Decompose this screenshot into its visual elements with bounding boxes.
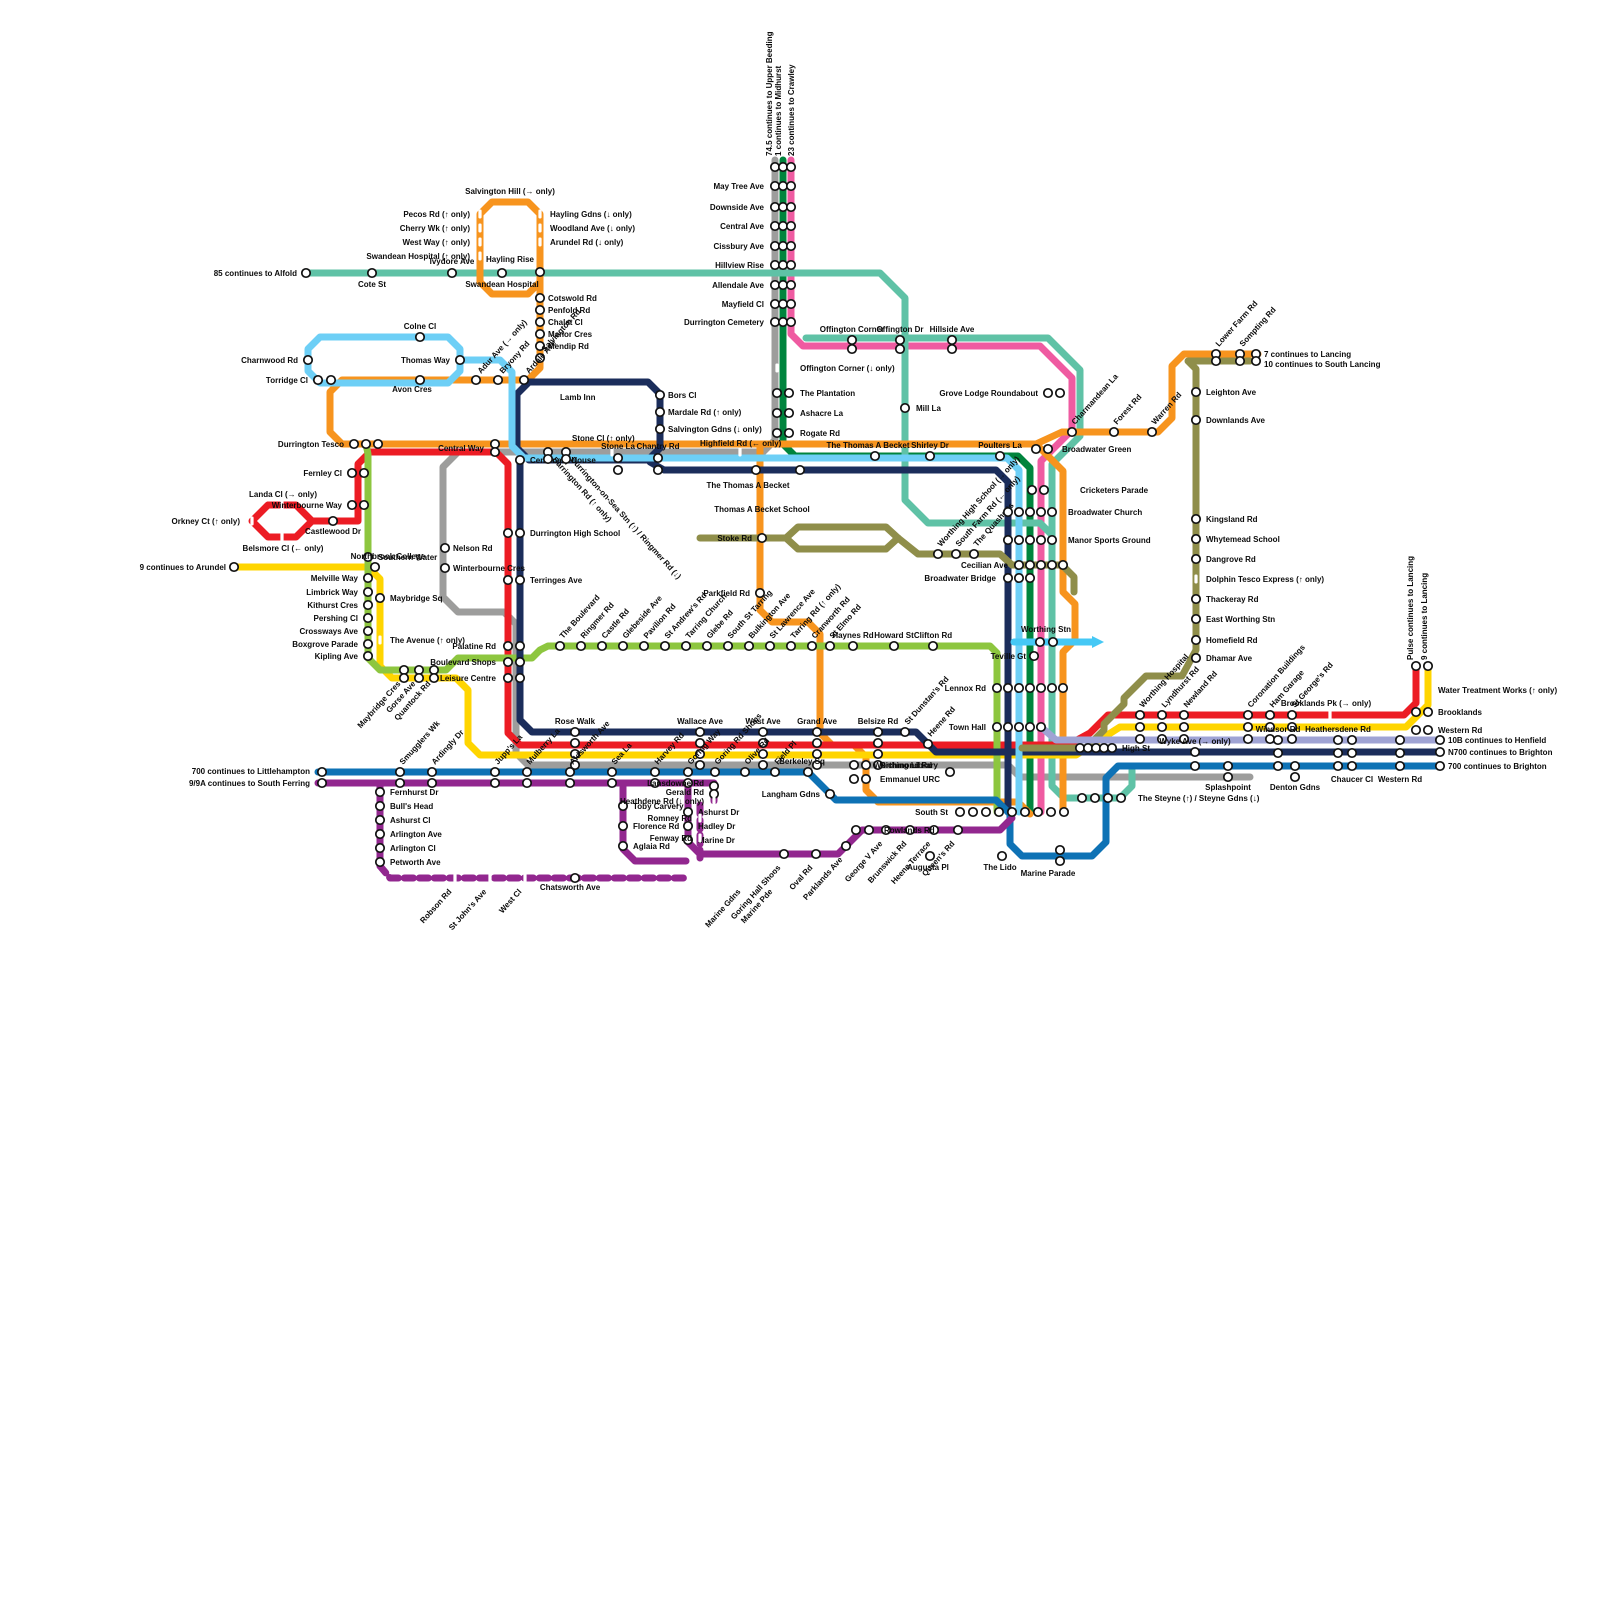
- stop-marker: [400, 666, 408, 674]
- stop-label: Arundel Rd (↓ only): [550, 238, 624, 247]
- stop-label: Haynes Rd: [832, 631, 873, 640]
- stop-label: Clifton Rd: [914, 631, 952, 640]
- stop-marker: [504, 576, 512, 584]
- stop-label: West Cl: [497, 887, 523, 915]
- stop-label: Cricketers Parade: [1080, 486, 1149, 495]
- stop-marker: [504, 642, 512, 650]
- stop-marker: [364, 601, 372, 609]
- stop-label: Robson Rd: [418, 887, 453, 925]
- stop-tick: [538, 238, 541, 247]
- stop-label: Marine Parade: [1021, 869, 1076, 878]
- stop-label: Wyke Ave (→ only): [1159, 737, 1231, 746]
- stop-marker: [1026, 684, 1034, 692]
- stop-label: Cissbury Ave: [713, 242, 764, 251]
- stop-label: Maybridge Sq: [390, 594, 443, 603]
- stop-marker: [779, 281, 787, 289]
- stop-marker: [516, 674, 524, 682]
- stop-marker: [759, 728, 767, 736]
- stop-marker: [787, 203, 795, 211]
- stop-marker: [371, 563, 379, 571]
- stop-label: Chatsworth Ave: [540, 883, 601, 892]
- stop-marker: [1244, 735, 1252, 743]
- stop-tick: [478, 238, 481, 247]
- stop-marker: [1021, 808, 1029, 816]
- stop-label: Leighton Ave: [1206, 388, 1257, 397]
- stop-marker: [376, 788, 384, 796]
- stop-label: Mayfield Cl: [722, 300, 764, 309]
- stop-marker: [852, 826, 860, 834]
- stop-label: Ashurst Dr: [698, 808, 739, 817]
- stop-label: Chaucer Cl: [1331, 775, 1373, 784]
- stop-marker: [516, 576, 524, 584]
- stop-label: N700 continues to Brighton: [1448, 748, 1553, 757]
- stop-label: Kithurst Cres: [307, 601, 358, 610]
- stop-marker: [929, 642, 937, 650]
- stop-marker: [1266, 735, 1274, 743]
- stop-marker: [865, 826, 873, 834]
- transit-map: May Tree AveDownside AveCentral AveCissb…: [0, 0, 1600, 1600]
- stop-label: Arlington Cl: [390, 844, 436, 853]
- stop-marker: [850, 775, 858, 783]
- stop-marker: [771, 300, 779, 308]
- stop-label: Hayling Rise: [486, 255, 535, 264]
- stop-label: Offington Corner (↓ only): [800, 364, 895, 373]
- stop-label: Durrington Tesco: [278, 440, 344, 449]
- stop-marker: [1048, 561, 1056, 569]
- stop-tick: [738, 448, 741, 457]
- stop-label: Winterbourne Way: [272, 501, 343, 510]
- stop-marker: [520, 376, 528, 384]
- stop-label: Lansdowne Rd: [647, 779, 704, 788]
- map-float-label: Pulse continues to Lancing: [1406, 556, 1415, 660]
- stop-marker: [874, 728, 882, 736]
- stop-marker: [771, 163, 779, 171]
- stop-marker: [516, 456, 524, 464]
- stop-marker: [787, 318, 795, 326]
- stop-marker: [504, 658, 512, 666]
- stop-label: Durrington Cemetery: [684, 318, 765, 327]
- stop-marker: [771, 768, 779, 776]
- stop-marker: [1288, 711, 1296, 719]
- stop-label: Parklands Ave: [801, 855, 845, 902]
- stop-marker: [1015, 723, 1023, 731]
- stop-label: Mardale Rd (↑ only): [668, 408, 742, 417]
- stop-marker: [608, 768, 616, 776]
- stop-label: Central Ave: [720, 222, 764, 231]
- stop-marker: [771, 261, 779, 269]
- stop-label: Allendale Ave: [712, 281, 764, 290]
- stop-label: Ivydore Ave: [430, 257, 475, 266]
- stop-marker: [1334, 762, 1342, 770]
- stop-marker: [348, 501, 356, 509]
- stop-marker: [771, 182, 779, 190]
- stop-label: Heathdene Rd (↓ only): [620, 797, 704, 806]
- stop-label: Ashurst Cl: [390, 816, 430, 825]
- stop-marker: [926, 852, 934, 860]
- stop-label: Aglaia Rd: [633, 842, 670, 851]
- stop-marker: [656, 425, 664, 433]
- stop-marker: [415, 666, 423, 674]
- stop-marker: [773, 429, 781, 437]
- stop-marker: [1158, 723, 1166, 731]
- stop-marker: [779, 318, 787, 326]
- stop-marker: [946, 768, 954, 776]
- stop-label: Ardingly Dr: [430, 728, 466, 766]
- stop-marker: [1436, 736, 1444, 744]
- stop-marker: [773, 409, 781, 417]
- stop-marker: [376, 594, 384, 602]
- stop-label: Berkeley Sq: [779, 757, 825, 766]
- stop-marker: [924, 740, 932, 748]
- stop-label: Howard St: [874, 631, 914, 640]
- stop-label: Dangrove Rd: [1206, 555, 1256, 564]
- stop-label: Parkfield Rd: [703, 589, 750, 598]
- stop-marker: [710, 782, 718, 790]
- stop-marker: [785, 429, 793, 437]
- stop-marker: [759, 761, 767, 769]
- stop-label: Emmanuel URC: [880, 775, 940, 784]
- stop-marker: [396, 768, 404, 776]
- stop-marker: [684, 822, 692, 830]
- stop-marker: [1084, 744, 1092, 752]
- stop-marker: [504, 674, 512, 682]
- stop-marker: [969, 808, 977, 816]
- stop-label: Brooklands: [1438, 708, 1483, 717]
- stop-marker: [566, 768, 574, 776]
- stop-marker: [954, 826, 962, 834]
- stop-marker: [948, 336, 956, 344]
- stop-label: Splashpoint: [1205, 783, 1251, 792]
- stop-label: Hadley Dr: [698, 822, 735, 831]
- stop-tick: [488, 874, 491, 883]
- stop-label: Bull's Head: [390, 802, 433, 811]
- stop-tick: [280, 533, 283, 542]
- stop-tick: [698, 814, 701, 823]
- stop-label: Heathersdene Rd: [1305, 725, 1371, 734]
- stop-marker: [1037, 723, 1045, 731]
- stop-label: Shirley Dr: [911, 441, 949, 450]
- stop-label: Chantry Rd: [636, 442, 679, 451]
- map-float-label: 9 continues to Lancing: [1420, 573, 1429, 660]
- stop-marker: [1026, 723, 1034, 731]
- stop-label: Downside Ave: [710, 203, 765, 212]
- stop-label: Whytemead School: [1206, 535, 1280, 544]
- stop-label: Homefield Rd: [1206, 636, 1258, 645]
- stop-marker: [1078, 794, 1086, 802]
- stop-marker: [428, 779, 436, 787]
- stop-label: 700 continues to Littlehampton: [192, 767, 310, 776]
- stop-marker: [1192, 515, 1200, 523]
- stop-label: Limbrick Way: [306, 588, 358, 597]
- stop-tick: [538, 224, 541, 233]
- stop-marker: [1224, 762, 1232, 770]
- stop-marker: [456, 356, 464, 364]
- stop-marker: [826, 642, 834, 650]
- stop-label: Downlands Ave: [1206, 416, 1266, 425]
- stop-marker: [1048, 536, 1056, 544]
- stop-marker: [1244, 723, 1252, 731]
- stop-marker: [504, 529, 512, 537]
- stop-label: Fenway Rd: [650, 834, 692, 843]
- stop-marker: [577, 642, 585, 650]
- stop-marker: [993, 723, 1001, 731]
- stop-marker: [1396, 749, 1404, 757]
- stop-marker: [696, 761, 704, 769]
- stop-marker: [1291, 762, 1299, 770]
- stop-marker: [1117, 794, 1125, 802]
- stop-marker: [362, 440, 370, 448]
- stop-label: Brooklands Pk (→ only): [1281, 699, 1372, 708]
- stop-marker: [1056, 389, 1064, 397]
- stop-marker: [1192, 555, 1200, 563]
- stop-marker: [1192, 388, 1200, 396]
- stop-marker: [758, 534, 766, 542]
- stop-tick: [478, 224, 481, 233]
- stop-label: Stoke Rd: [717, 534, 752, 543]
- stop-label: Offington Dr: [876, 325, 923, 334]
- stop-marker: [1424, 662, 1432, 670]
- stop-marker: [302, 269, 310, 277]
- stop-marker: [1004, 574, 1012, 582]
- stop-marker: [752, 466, 760, 474]
- map-float-label: The Thomas A Becket: [707, 481, 790, 490]
- stop-marker: [364, 574, 372, 582]
- stop-marker: [1252, 357, 1260, 365]
- stop-marker: [779, 222, 787, 230]
- stop-label: Leisure Centre: [440, 674, 497, 683]
- stop-marker: [1192, 595, 1200, 603]
- stop-label: Torridge Cl: [266, 376, 308, 385]
- stop-marker: [364, 614, 372, 622]
- stop-marker: [996, 452, 1004, 460]
- stop-label: Heene Rd: [926, 705, 957, 739]
- stop-label: Central Way: [438, 444, 484, 453]
- stop-tick: [742, 874, 745, 883]
- stop-label: 9/9A continues to South Ferring: [189, 779, 310, 788]
- stop-label: Grove Lodge Roundabout: [939, 389, 1038, 398]
- stop-marker: [374, 440, 382, 448]
- stop-marker: [1048, 508, 1056, 516]
- stop-marker: [448, 269, 456, 277]
- stop-marker: [360, 501, 368, 509]
- stop-label: Marine Dr: [698, 836, 735, 845]
- stop-marker: [1348, 762, 1356, 770]
- stop-marker: [862, 775, 870, 783]
- stop-label: Denton Gdns: [1270, 783, 1321, 792]
- stop-label: Colne Cl: [404, 322, 436, 331]
- stop-marker: [1180, 711, 1188, 719]
- stop-label: Orkney Ct (↑ only): [172, 517, 241, 526]
- stop-label: Melville Way: [311, 574, 359, 583]
- stop-label: Boulevard Shops: [430, 658, 496, 667]
- stop-label: 7 continues to Lancing: [1264, 350, 1351, 359]
- stop-label: 9 continues to Arundel: [140, 563, 226, 572]
- stop-tick: [538, 210, 541, 219]
- stop-tick: [478, 210, 481, 219]
- stop-marker: [491, 440, 499, 448]
- stop-label: Hillside Ave: [930, 325, 975, 334]
- route-line-purple-goring-dash: [380, 866, 688, 878]
- stop-marker: [1004, 508, 1012, 516]
- stop-marker: [1060, 808, 1068, 816]
- stop-label: Worthing Library: [874, 761, 939, 770]
- stop-marker: [1158, 711, 1166, 719]
- stop-label: Harvey Rd: [653, 731, 686, 767]
- stop-marker: [416, 333, 424, 341]
- stop-marker: [661, 642, 669, 650]
- route-line-olive-lens-a: [786, 527, 898, 538]
- stop-marker: [787, 182, 795, 190]
- stop-marker: [696, 728, 704, 736]
- stop-label: Ashacre La: [800, 409, 844, 418]
- map-float-label: 23 continues to Crawley: [787, 64, 796, 156]
- stop-marker: [741, 768, 749, 776]
- stop-marker: [796, 466, 804, 474]
- stop-marker: [472, 376, 480, 384]
- stop-marker: [614, 454, 622, 462]
- stop-marker: [1244, 711, 1252, 719]
- stop-marker: [1028, 486, 1036, 494]
- stop-label: Landa Cl (→ only): [249, 490, 317, 499]
- stop-marker: [1030, 652, 1038, 660]
- stop-marker: [995, 808, 1003, 816]
- stop-marker: [536, 306, 544, 314]
- stop-label: Avon Cres: [392, 385, 432, 394]
- stop-marker: [890, 642, 898, 650]
- stop-label: Charnwood Rd: [241, 356, 298, 365]
- stop-tick: [774, 874, 777, 883]
- stop-label: Winterbourne Cres: [453, 564, 525, 573]
- stop-marker: [1224, 773, 1232, 781]
- stop-marker: [536, 330, 544, 338]
- stop-marker: [1100, 744, 1108, 752]
- stop-marker: [441, 564, 449, 572]
- stop-marker: [516, 658, 524, 666]
- stop-marker: [1015, 574, 1023, 582]
- stop-marker: [1040, 486, 1048, 494]
- stop-marker: [364, 588, 372, 596]
- stop-label: 10B continues to Henfield: [1448, 736, 1546, 745]
- stop-marker: [1436, 762, 1444, 770]
- stop-marker: [364, 640, 372, 648]
- stop-marker: [1192, 654, 1200, 662]
- stop-marker: [1037, 684, 1045, 692]
- stop-marker: [491, 448, 499, 456]
- stop-marker: [1266, 711, 1274, 719]
- stop-marker: [745, 642, 753, 650]
- stop-marker: [1037, 508, 1045, 516]
- stop-marker: [724, 642, 732, 650]
- stop-tick: [698, 834, 701, 843]
- stop-marker: [703, 642, 711, 650]
- stop-marker: [619, 822, 627, 830]
- stop-marker: [684, 768, 692, 776]
- stop-marker: [804, 768, 812, 776]
- stop-marker: [848, 345, 856, 353]
- stop-marker: [544, 455, 552, 463]
- stop-label: Augusta Pl: [907, 863, 949, 872]
- stop-marker: [1068, 428, 1076, 436]
- stop-marker: [1136, 711, 1144, 719]
- stop-label: 10 continues to South Lancing: [1264, 360, 1381, 369]
- stop-label: Petworth Ave: [390, 858, 441, 867]
- stop-label: Durrington High School: [530, 529, 620, 538]
- map-canvas: May Tree AveDownside AveCentral AveCissb…: [0, 0, 1600, 1600]
- stop-marker: [1015, 536, 1023, 544]
- stop-marker: [329, 517, 337, 525]
- stop-marker: [874, 750, 882, 758]
- stop-marker: [523, 768, 531, 776]
- stop-tick: [1328, 711, 1331, 720]
- stop-marker: [896, 345, 904, 353]
- stop-marker: [1148, 428, 1156, 436]
- stop-tick: [523, 874, 526, 883]
- stop-marker: [779, 300, 787, 308]
- stop-tick: [712, 797, 715, 806]
- stop-label: Broadwater Church: [1068, 508, 1142, 517]
- stop-marker: [441, 544, 449, 552]
- stop-marker: [654, 454, 662, 462]
- stop-marker: [787, 261, 795, 269]
- stop-marker: [1037, 561, 1045, 569]
- stop-marker: [1037, 536, 1045, 544]
- stop-marker: [1026, 574, 1034, 582]
- stop-label: May Tree Ave: [713, 182, 764, 191]
- stop-marker: [1091, 794, 1099, 802]
- stop-label: Kipling Ave: [315, 652, 359, 661]
- stop-marker: [364, 627, 372, 635]
- stop-marker: [598, 642, 606, 650]
- stop-marker: [1047, 808, 1055, 816]
- stop-marker: [428, 768, 436, 776]
- stop-label: West Way (↑ only): [402, 238, 470, 247]
- stop-marker: [1180, 723, 1188, 731]
- stop-label: Manor Sports Ground: [1068, 536, 1151, 545]
- stop-marker: [773, 389, 781, 397]
- stop-marker: [1396, 762, 1404, 770]
- stop-marker: [396, 779, 404, 787]
- stop-marker: [993, 684, 1001, 692]
- stop-marker: [1104, 794, 1112, 802]
- stop-marker: [619, 842, 627, 850]
- stop-label: Forest Rd: [1112, 392, 1144, 426]
- stop-label: Fernley Cl: [303, 469, 342, 478]
- stop-marker: [348, 469, 356, 477]
- stop-tick: [787, 364, 790, 373]
- stop-marker: [654, 466, 662, 474]
- stop-marker: [779, 261, 787, 269]
- stop-marker: [608, 779, 616, 787]
- stop-marker: [360, 469, 368, 477]
- stop-label: Lower Farm Rd: [1214, 299, 1260, 348]
- stop-marker: [848, 336, 856, 344]
- stop-marker: [318, 779, 326, 787]
- stop-marker: [1274, 762, 1282, 770]
- stop-label: Grand Ave: [797, 717, 837, 726]
- stop-marker: [1348, 749, 1356, 757]
- stop-tick: [453, 874, 456, 883]
- stop-label: Romney Rd: [648, 814, 693, 823]
- stop-marker: [779, 182, 787, 190]
- stop-marker: [1436, 748, 1444, 756]
- stop-marker: [1026, 561, 1034, 569]
- stop-marker: [656, 408, 664, 416]
- stop-label: Dhamar Ave: [1206, 654, 1253, 663]
- stop-marker: [1191, 748, 1199, 756]
- stop-marker: [1348, 736, 1356, 744]
- stop-marker: [1048, 684, 1056, 692]
- stop-label: Nelson Rd: [453, 544, 493, 553]
